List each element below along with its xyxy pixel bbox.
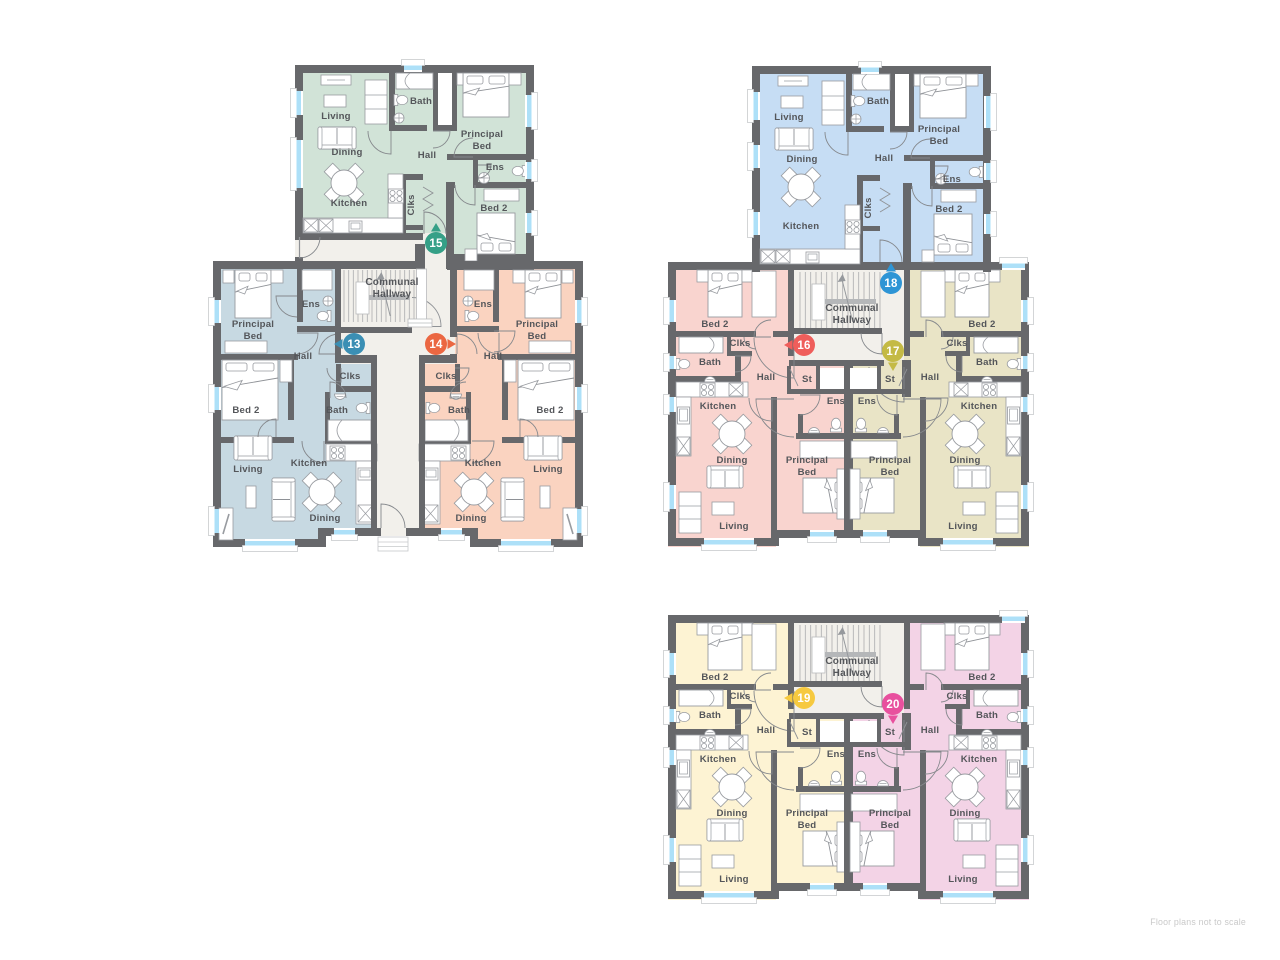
svg-text:Ens: Ens (486, 162, 504, 173)
svg-text:Ens: Ens (858, 396, 876, 407)
svg-text:Ens: Ens (474, 299, 492, 310)
svg-text:Kitchen: Kitchen (331, 198, 368, 209)
svg-text:Clks: Clks (863, 197, 874, 218)
svg-text:Ens: Ens (943, 174, 961, 185)
svg-text:Floor plans not to scale: Floor plans not to scale (1150, 917, 1246, 927)
svg-text:Clks: Clks (339, 371, 360, 382)
svg-text:Dining: Dining (786, 154, 817, 165)
svg-text:19: 19 (797, 693, 810, 705)
svg-text:Living: Living (321, 111, 350, 122)
svg-text:Bed: Bed (473, 141, 492, 152)
svg-text:Living: Living (774, 112, 803, 123)
svg-text:Communal: Communal (365, 277, 418, 288)
svg-text:Hallway: Hallway (373, 289, 412, 300)
svg-text:Bed: Bed (798, 467, 817, 478)
svg-text:Kitchen: Kitchen (291, 458, 328, 469)
svg-text:16: 16 (797, 340, 810, 352)
svg-text:Dining: Dining (949, 455, 980, 466)
svg-text:Hall: Hall (757, 725, 775, 736)
svg-text:Bed: Bed (881, 820, 900, 831)
svg-text:Ens: Ens (858, 749, 876, 760)
svg-text:Bed 2: Bed 2 (701, 672, 728, 683)
svg-text:Dining: Dining (949, 808, 980, 819)
svg-text:18: 18 (884, 278, 898, 290)
svg-text:Kitchen: Kitchen (783, 221, 820, 232)
svg-text:Hall: Hall (921, 725, 939, 736)
svg-text:Living: Living (948, 521, 977, 532)
svg-text:Bath: Bath (867, 96, 889, 107)
svg-text:Bath: Bath (326, 405, 348, 416)
svg-text:Dining: Dining (331, 147, 362, 158)
svg-text:Dining: Dining (455, 513, 486, 524)
svg-text:Kitchen: Kitchen (700, 754, 737, 765)
svg-text:Bath: Bath (699, 710, 721, 721)
svg-text:Hall: Hall (921, 372, 939, 383)
svg-text:Bath: Bath (976, 357, 998, 368)
svg-text:Bed 2: Bed 2 (968, 319, 995, 330)
svg-text:Clks: Clks (729, 691, 750, 702)
svg-text:Dining: Dining (716, 455, 747, 466)
svg-text:Hall: Hall (875, 153, 893, 164)
svg-text:Hall: Hall (418, 150, 436, 161)
svg-text:Principal: Principal (461, 129, 503, 140)
svg-text:Principal: Principal (232, 319, 274, 330)
svg-text:Bed: Bed (930, 136, 949, 147)
svg-text:20: 20 (886, 699, 899, 711)
svg-text:15: 15 (429, 238, 443, 250)
svg-text:Bed: Bed (798, 820, 817, 831)
svg-text:Hallway: Hallway (833, 668, 872, 679)
svg-text:Bed: Bed (528, 331, 547, 342)
svg-text:St: St (885, 727, 896, 738)
svg-text:Living: Living (533, 464, 562, 475)
svg-text:Principal: Principal (516, 319, 558, 330)
svg-text:St: St (802, 727, 813, 738)
svg-text:Clks: Clks (406, 194, 417, 215)
svg-text:Dining: Dining (309, 513, 340, 524)
svg-text:Living: Living (948, 874, 977, 885)
svg-text:Bed 2: Bed 2 (968, 672, 995, 683)
svg-text:Clks: Clks (946, 691, 967, 702)
svg-text:Bed 2: Bed 2 (701, 319, 728, 330)
svg-text:Bath: Bath (410, 96, 432, 107)
svg-text:Communal: Communal (825, 656, 878, 667)
svg-text:Bath: Bath (448, 405, 470, 416)
svg-text:Bath: Bath (699, 357, 721, 368)
svg-text:Kitchen: Kitchen (961, 754, 998, 765)
svg-text:Living: Living (719, 521, 748, 532)
svg-text:Bed 2: Bed 2 (232, 405, 259, 416)
svg-text:Bed: Bed (881, 467, 900, 478)
svg-text:Ens: Ens (827, 749, 845, 760)
svg-text:Kitchen: Kitchen (700, 401, 737, 412)
svg-text:Clks: Clks (729, 338, 750, 349)
svg-text:St: St (802, 374, 813, 385)
svg-text:Bath: Bath (976, 710, 998, 721)
svg-text:Hall: Hall (294, 351, 312, 362)
svg-text:Principal: Principal (786, 808, 828, 819)
svg-text:Kitchen: Kitchen (465, 458, 502, 469)
svg-text:Living: Living (719, 874, 748, 885)
svg-text:Communal: Communal (825, 303, 878, 314)
svg-text:Principal: Principal (869, 455, 911, 466)
svg-text:17: 17 (886, 346, 899, 358)
svg-text:Principal: Principal (786, 455, 828, 466)
svg-text:Principal: Principal (869, 808, 911, 819)
svg-text:13: 13 (347, 339, 360, 351)
svg-text:Bed 2: Bed 2 (536, 405, 563, 416)
svg-text:Bed: Bed (244, 331, 263, 342)
svg-text:Living: Living (233, 464, 262, 475)
svg-text:St: St (885, 374, 896, 385)
svg-text:Bed 2: Bed 2 (480, 203, 507, 214)
svg-text:Clks: Clks (946, 338, 967, 349)
svg-text:Ens: Ens (302, 299, 320, 310)
svg-text:Hall: Hall (484, 351, 502, 362)
svg-text:14: 14 (429, 339, 443, 351)
svg-text:Clks: Clks (435, 371, 456, 382)
svg-text:Hall: Hall (757, 372, 775, 383)
svg-text:Bed 2: Bed 2 (935, 204, 962, 215)
svg-text:Ens: Ens (827, 396, 845, 407)
svg-text:Dining: Dining (716, 808, 747, 819)
svg-text:Hallway: Hallway (833, 315, 872, 326)
svg-text:Principal: Principal (918, 124, 960, 135)
svg-text:Kitchen: Kitchen (961, 401, 998, 412)
